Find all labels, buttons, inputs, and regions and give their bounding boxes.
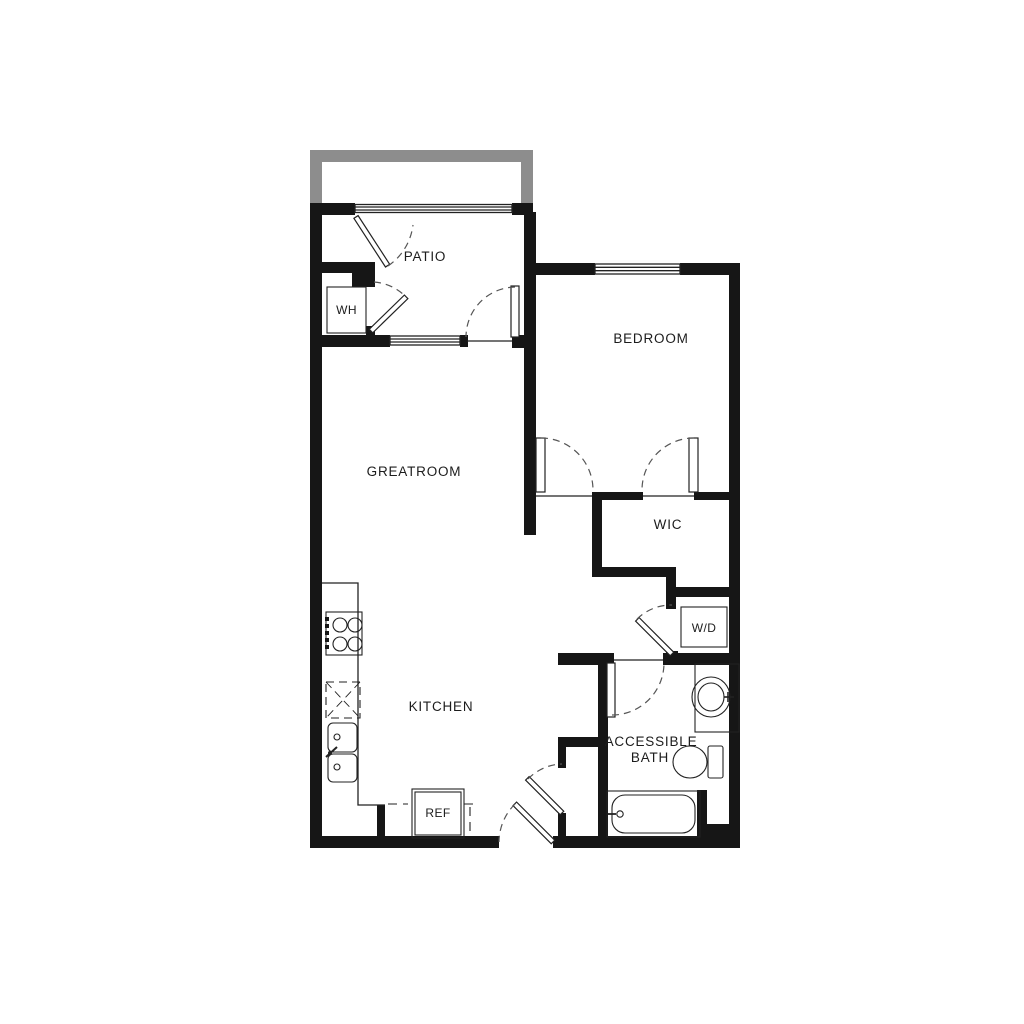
entry-closet-door <box>526 764 564 815</box>
floor-plan-drawing: REF WH W/D <box>0 0 1024 1024</box>
railing-right-post <box>521 150 533 204</box>
room-label-bath-line2: BATH <box>631 750 669 765</box>
patio-screen-window <box>355 205 512 213</box>
bathroom-fixtures <box>607 664 739 837</box>
water-heater-label: WH <box>336 303 357 317</box>
dishwasher-icon <box>326 682 360 718</box>
washer-dryer-icon: W/D <box>681 607 727 647</box>
room-label-bath-line1: ACCESSIBLE <box>605 734 698 749</box>
floor-plan-page: REF WH W/D <box>0 0 1024 1024</box>
railing-left-post <box>310 150 322 204</box>
greatroom-window <box>390 336 460 345</box>
kitchen-sink-icon <box>326 723 357 782</box>
bathtub-icon <box>607 791 700 837</box>
refrigerator-icon: REF <box>388 789 474 838</box>
railing-top <box>310 150 533 162</box>
wic-door <box>642 438 698 492</box>
washer-dryer-door <box>636 605 674 656</box>
water-heater-door <box>369 282 408 333</box>
room-label-kitchen: KITCHEN <box>409 699 474 714</box>
refrigerator-label: REF <box>425 806 450 820</box>
patio-door <box>466 286 519 337</box>
washer-dryer-label: W/D <box>692 621 717 635</box>
patio-railing <box>310 150 533 204</box>
bath-door <box>607 663 664 717</box>
room-label-patio: PATIO <box>404 249 447 264</box>
bedroom-door <box>536 438 593 492</box>
bedroom-window <box>595 264 680 274</box>
room-label-greatroom: GREATROOM <box>367 464 462 479</box>
room-label-bedroom: BEDROOM <box>613 331 688 346</box>
stove-icon <box>325 612 362 655</box>
room-label-wic: WIC <box>654 517 683 532</box>
toilet-icon <box>673 746 723 778</box>
kitchen-counter <box>322 583 385 805</box>
entry-door <box>499 802 555 844</box>
door-openings <box>467 341 694 660</box>
water-heater-icon: WH <box>327 287 366 333</box>
